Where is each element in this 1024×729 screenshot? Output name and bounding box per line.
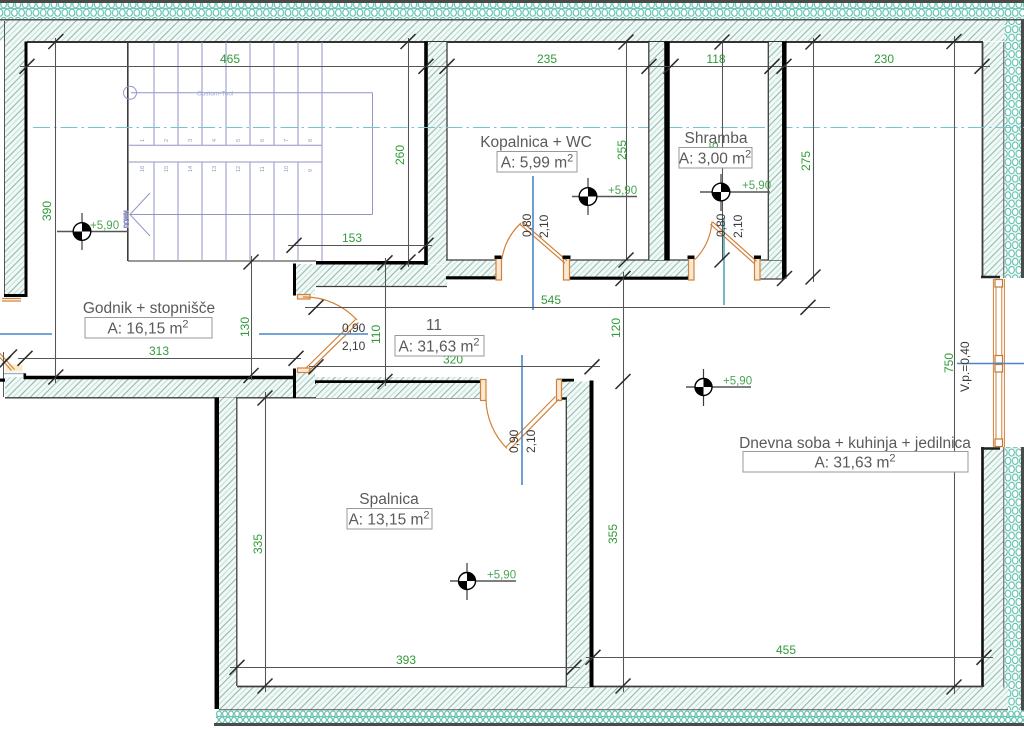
svg-text:A: 31,63 m2: A: 31,63 m2 [814,453,895,472]
svg-text:16: 16 [140,166,146,172]
svg-text:Kopalnica + WC: Kopalnica + WC [480,134,592,151]
svg-text:3: 3 [188,139,194,142]
svg-text:1: 1 [140,139,146,142]
svg-text:A: 13,15 m2: A: 13,15 m2 [348,510,429,529]
svg-text:DOWN: DOWN [124,211,130,228]
svg-text:+5,90: +5,90 [487,570,516,582]
svg-text:0,90: 0,90 [507,429,521,453]
svg-text:2,10: 2,10 [731,214,745,238]
svg-text:12: 12 [236,166,242,172]
svg-text:+5,90: +5,90 [723,376,752,388]
svg-text:235: 235 [537,52,557,66]
svg-text:Shramba: Shramba [685,130,748,147]
svg-text:393: 393 [396,653,416,667]
svg-text:120: 120 [609,318,623,338]
svg-text:+5,90: +5,90 [608,185,637,197]
svg-text:15: 15 [164,166,170,172]
svg-text:0,90: 0,90 [342,321,366,335]
svg-text:2,10: 2,10 [537,214,551,238]
svg-text:8: 8 [308,139,314,142]
svg-text:Godnik + stopnišče: Godnik + stopnišče [83,300,215,317]
svg-text:455: 455 [776,643,796,657]
svg-text:545: 545 [541,293,561,307]
svg-text:465: 465 [220,52,240,66]
svg-text:11: 11 [260,166,266,172]
svg-text:0,80: 0,80 [520,213,534,237]
svg-text:153: 153 [342,231,362,245]
svg-text:110: 110 [369,325,383,344]
svg-text:10: 10 [284,166,290,172]
svg-text:2,10: 2,10 [524,429,538,453]
svg-text:Custom-Tool: Custom-Tool [197,91,234,98]
svg-text:A: 16,15 m2: A: 16,15 m2 [107,319,188,338]
svg-text:6: 6 [260,139,266,142]
svg-text:Dnevna soba + kuhinja + jediln: Dnevna soba + kuhinja + jedilnica [739,435,971,452]
svg-text:313: 313 [149,344,169,358]
svg-text:7: 7 [284,139,290,142]
svg-text:2: 2 [164,139,170,142]
svg-text:+5,90: +5,90 [90,220,119,232]
svg-text:13: 13 [212,166,218,172]
svg-text:355: 355 [606,524,620,544]
svg-text:260: 260 [393,145,407,165]
svg-text:5: 5 [236,139,242,142]
svg-text:2,10: 2,10 [342,339,366,353]
svg-text:A: 3,00 m2: A: 3,00 m2 [679,149,751,168]
svg-text:230: 230 [874,52,894,66]
svg-text:11: 11 [426,317,442,334]
svg-text:9: 9 [308,169,314,172]
svg-text:14: 14 [188,166,194,172]
svg-text:0,80: 0,80 [714,213,728,237]
svg-text:A: 5,99 m2: A: 5,99 m2 [501,153,573,172]
svg-text:A: 31,63 m2: A: 31,63 m2 [398,337,479,356]
svg-text:+5,90: +5,90 [742,180,771,192]
svg-text:130: 130 [238,317,252,337]
svg-text:V.p.=0,40: V.p.=0,40 [958,341,972,392]
svg-text:255: 255 [615,140,629,160]
svg-text:390: 390 [40,201,54,221]
svg-text:Spalnica: Spalnica [359,491,419,508]
svg-text:4: 4 [212,139,218,142]
svg-text:275: 275 [799,151,813,171]
svg-text:335: 335 [251,534,265,554]
svg-text:750: 750 [942,353,956,373]
